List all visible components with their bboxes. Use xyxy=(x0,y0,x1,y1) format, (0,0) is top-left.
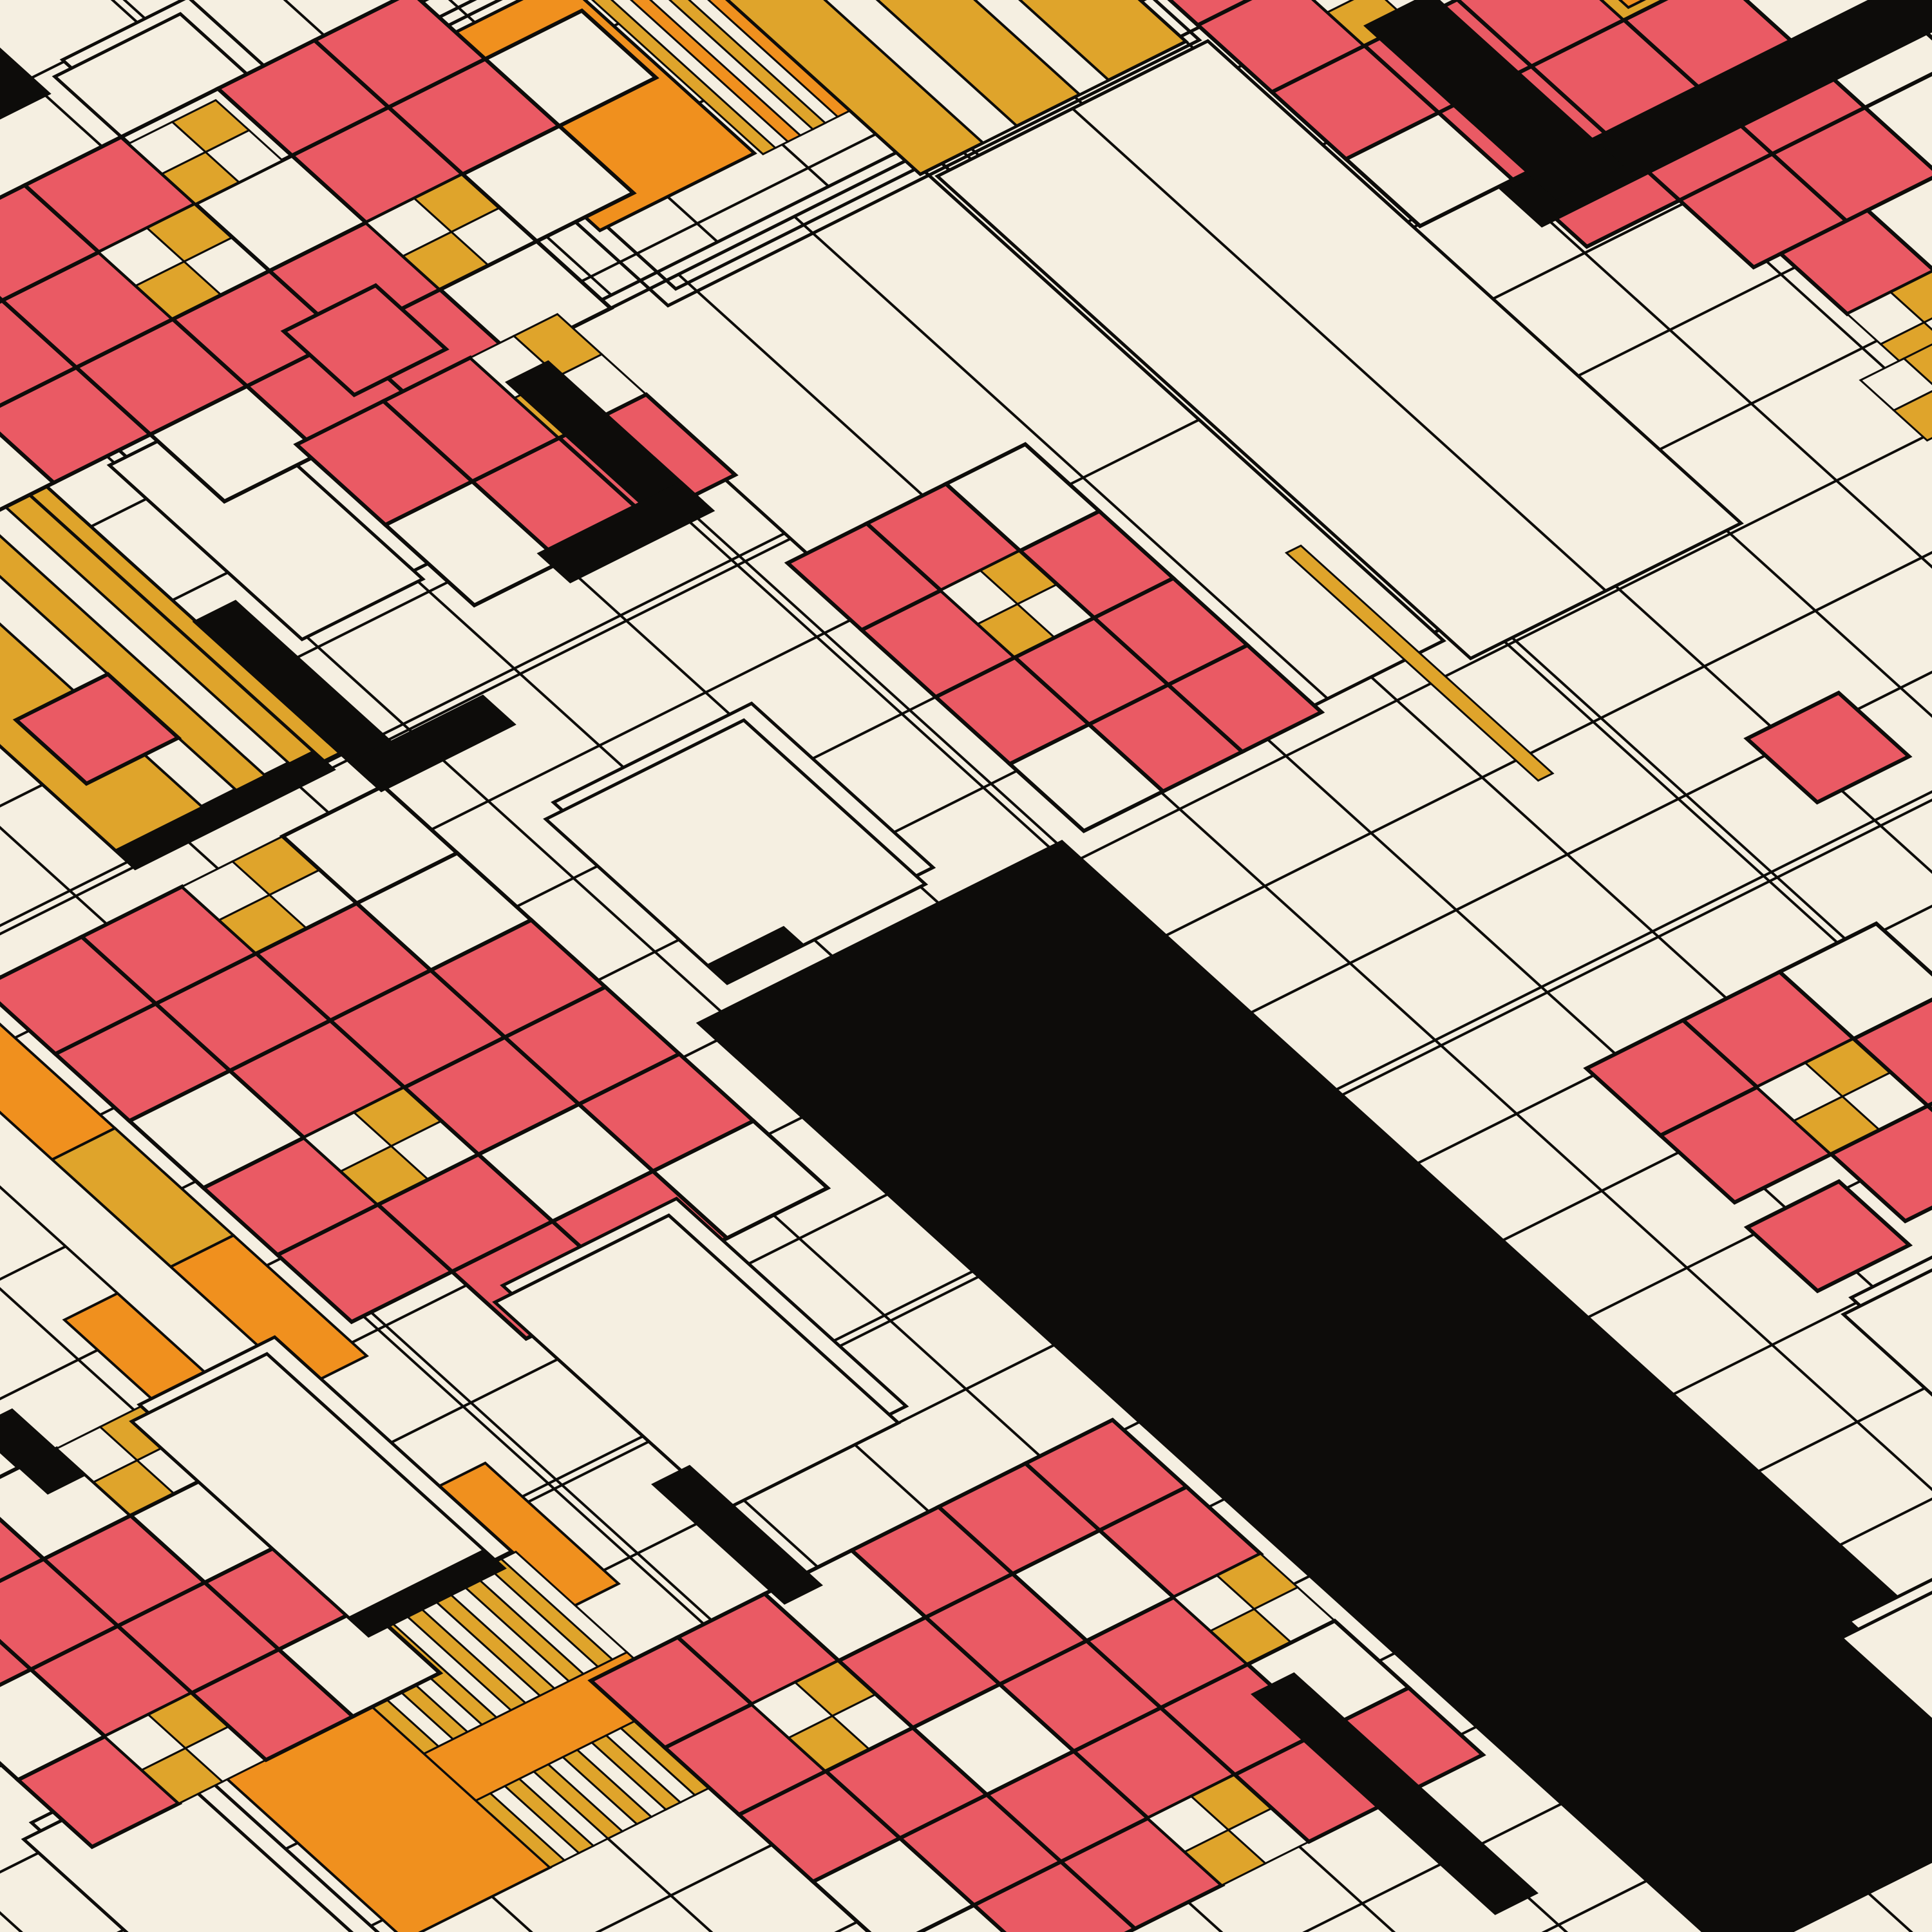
artwork-canvas xyxy=(0,0,1932,1932)
artwork-stage xyxy=(0,0,1932,1932)
